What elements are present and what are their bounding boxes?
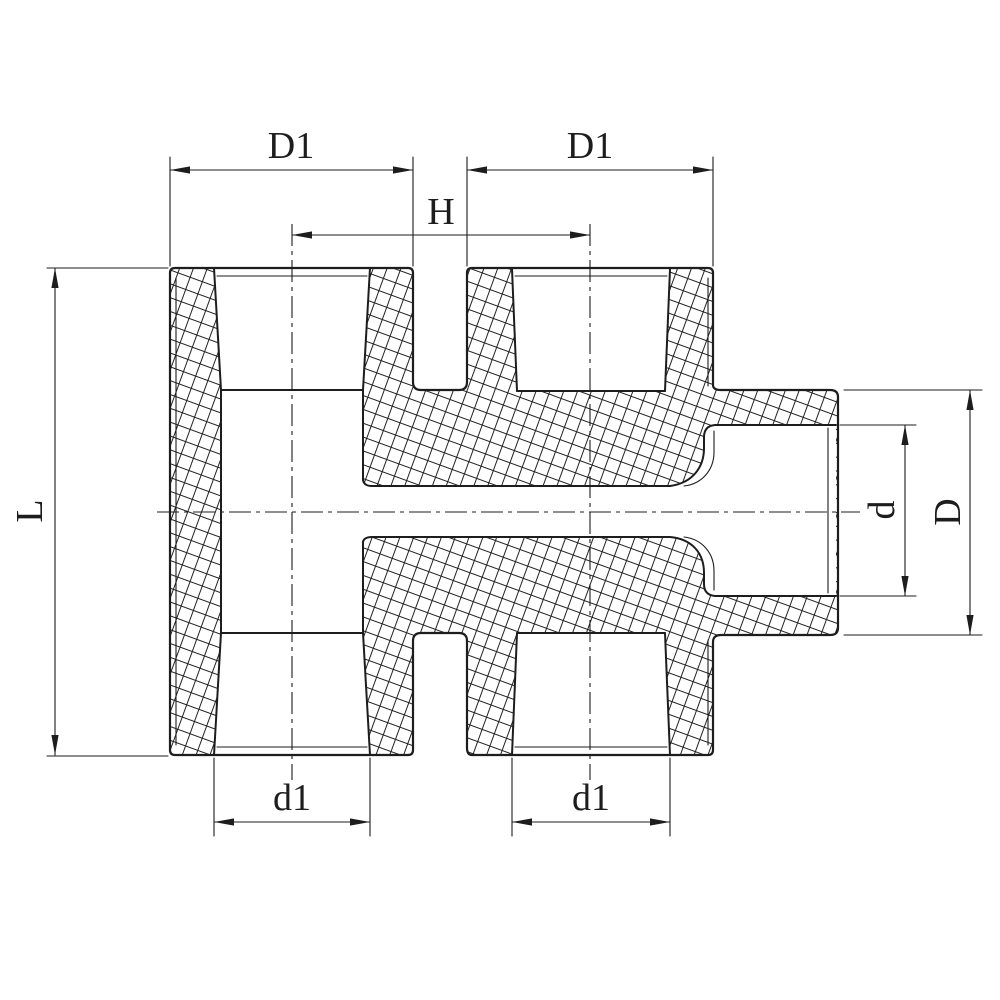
dim-label-d-big: D: [927, 498, 969, 525]
drawing-canvas: D1 D1 H L d D d1 d1: [0, 0, 1000, 1000]
dim-label-d1-bottom-left: d1: [273, 777, 311, 819]
right-port-top-socket-void: [512, 269, 670, 391]
dim-label-h: H: [427, 191, 454, 233]
dim-label-d1-left-top: D1: [268, 125, 314, 167]
dim-label-d1-right-top: D1: [567, 125, 613, 167]
dim-label-l: L: [9, 499, 51, 522]
dim-label-d-small: d: [861, 501, 903, 520]
right-port-bottom-socket-void: [512, 633, 670, 755]
technical-section-drawing: D1 D1 H L d D d1 d1: [0, 0, 1000, 1000]
dim-label-d1-bottom-right: d1: [572, 777, 610, 819]
